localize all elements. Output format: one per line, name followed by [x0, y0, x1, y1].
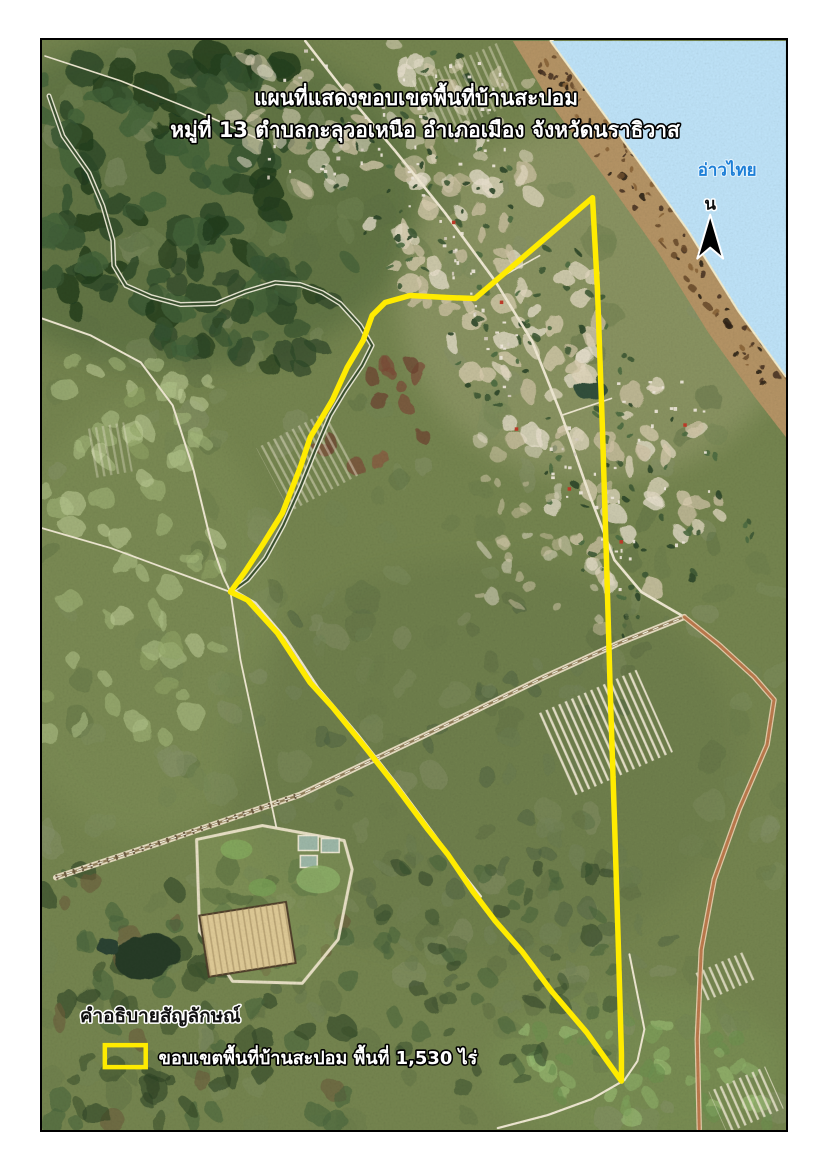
legend-heading: คำอธิบายสัญลักษณ์ [80, 1005, 241, 1027]
map-title-line2: หมู่ที่ 13 ตำบลกะลุวอเหนือ อำเภอเมือง จั… [170, 114, 680, 144]
sea-label: อ่าวไทย [698, 160, 757, 180]
legend-item-label: ขอบเขตพื้นที่บ้านสะปอม พื้นที่ 1,530 ไร่ [159, 1044, 478, 1069]
aerial-basemap: แผนที่แสดงขอบเขตพื้นที่บ้านสะปอม หมู่ที่… [42, 40, 786, 1130]
map-sheet: แผนที่แสดงขอบเขตพื้นที่บ้านสะปอม หมู่ที่… [0, 0, 827, 1169]
north-label: น [704, 194, 716, 214]
grain-overlay [42, 40, 786, 1130]
map-frame: แผนที่แสดงขอบเขตพื้นที่บ้านสะปอม หมู่ที่… [40, 38, 788, 1132]
map-title-line1: แผนที่แสดงขอบเขตพื้นที่บ้านสะปอม [254, 82, 578, 110]
